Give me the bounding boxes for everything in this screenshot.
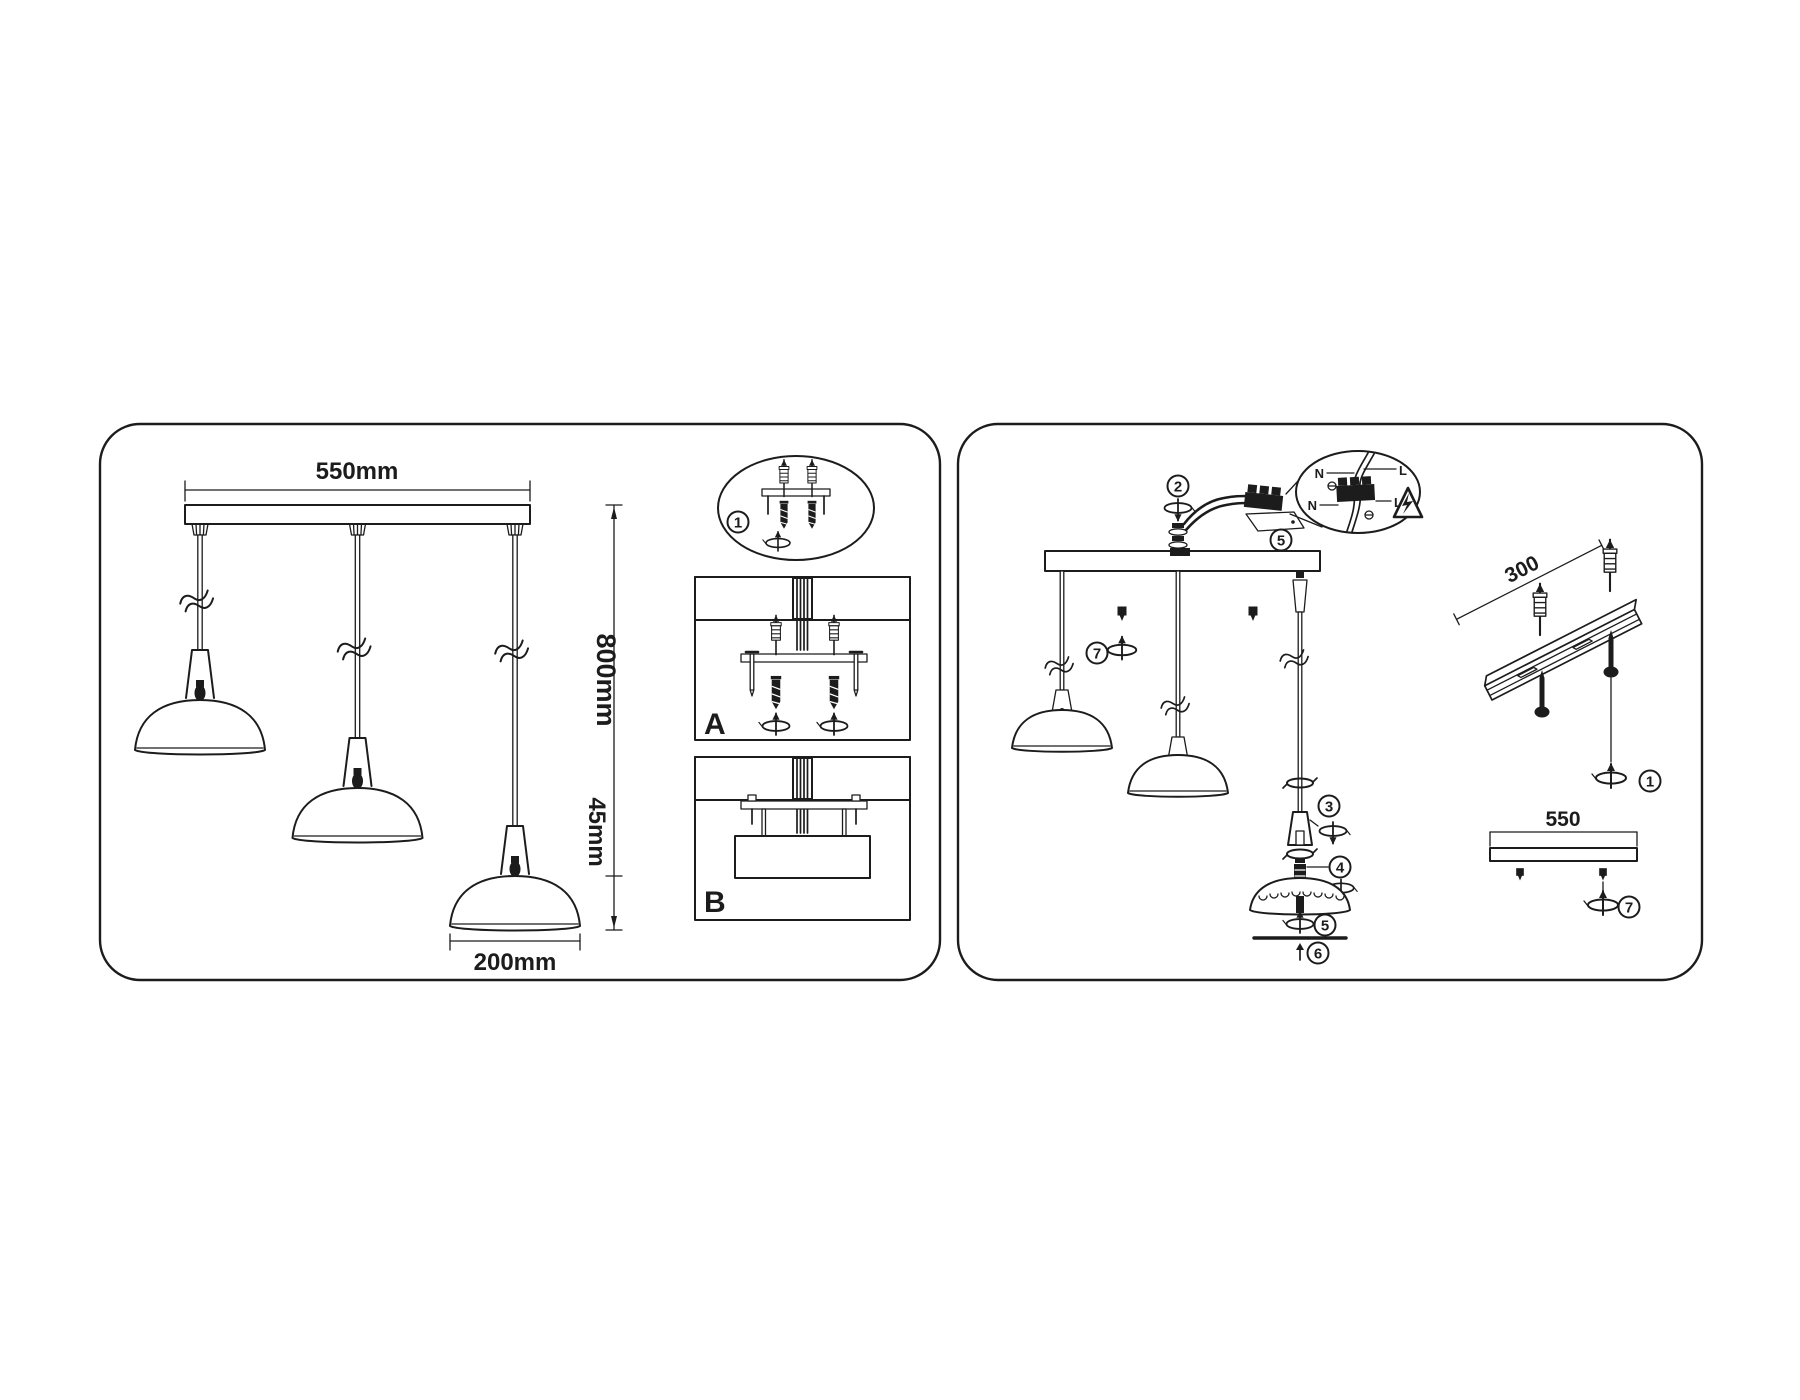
svg-text:5: 5 — [1277, 533, 1285, 550]
height-dimension-label: 800mm — [591, 633, 621, 726]
right-panel: 2 5 N L — [958, 424, 1702, 980]
box-a-bracket — [741, 654, 867, 662]
suspension-bar-top-view — [1490, 848, 1637, 861]
shade-width-dimension-label2: 200mm — [474, 949, 557, 976]
shade-height-dimension-45: 45mm — [583, 797, 610, 866]
cord — [1298, 612, 1302, 812]
width-dimension-label: 550mm — [316, 458, 399, 485]
box-b-bracket — [741, 801, 867, 809]
svg-text:7: 7 — [1093, 646, 1101, 663]
pendant-1-cord — [198, 535, 202, 650]
step-badge-7-bottom: 7 — [1619, 897, 1640, 918]
ceiling-canopy-bar — [185, 505, 530, 524]
svg-text:5: 5 — [1321, 918, 1329, 935]
live-label-upper: L — [1399, 463, 1407, 478]
detail-bracket — [762, 489, 830, 496]
step-badge-5-shade: 5 — [1315, 915, 1336, 936]
svg-text:7: 7 — [1625, 900, 1633, 917]
shade-socket-sleeve — [1296, 896, 1304, 913]
section-box-b: B — [695, 757, 910, 920]
step-badge-3: 3 — [1319, 796, 1340, 817]
section-a-label: A — [704, 708, 726, 741]
svg-text:4: 4 — [1336, 860, 1345, 877]
instruction-diagram: 550mm — [0, 0, 1800, 1400]
shade-height-dimension-label: 45mm — [583, 797, 610, 866]
bar-dimension-label: 550 — [1545, 808, 1580, 831]
box-b-rod — [762, 809, 766, 837]
section-box-a: A — [695, 577, 910, 741]
neutral-label-upper: N — [1315, 466, 1324, 481]
wiring-terminal-block — [1336, 476, 1375, 502]
step-badge-1-rail: 1 — [1640, 771, 1661, 792]
pendant-3-bulb-socket — [510, 861, 521, 877]
cord-nipple — [1293, 580, 1307, 612]
step-badge-6: 6 — [1308, 943, 1329, 964]
svg-text:1: 1 — [1646, 774, 1654, 791]
pendant-2-cord — [355, 535, 359, 738]
svg-text:2: 2 — [1174, 479, 1182, 496]
step-badge-7: 7 — [1087, 643, 1108, 664]
manual-page: 550mm — [0, 0, 1800, 1400]
step-badge-4: 4 — [1330, 857, 1351, 878]
box-b-rod — [843, 809, 847, 837]
step-badge-5-wiring: 5 — [1271, 530, 1292, 551]
svg-text:1: 1 — [734, 515, 742, 532]
step-badge-2: 2 — [1168, 476, 1189, 497]
svg-text:6: 6 — [1314, 946, 1322, 963]
pendant-3-cord — [513, 535, 517, 826]
left-panel: 550mm — [100, 424, 940, 980]
pendant-2-bulb-socket — [352, 773, 363, 789]
neutral-label-lower: N — [1308, 498, 1317, 513]
box-b-canopy — [735, 836, 870, 878]
svg-text:3: 3 — [1325, 799, 1333, 816]
pendant-1-bulb-socket — [195, 685, 206, 701]
wiring-detail-circle: N L N L — [1296, 451, 1422, 533]
section-b-label: B — [704, 886, 726, 919]
step-badge-1: 1 — [728, 512, 749, 533]
bar-cord-entry — [1170, 548, 1190, 556]
